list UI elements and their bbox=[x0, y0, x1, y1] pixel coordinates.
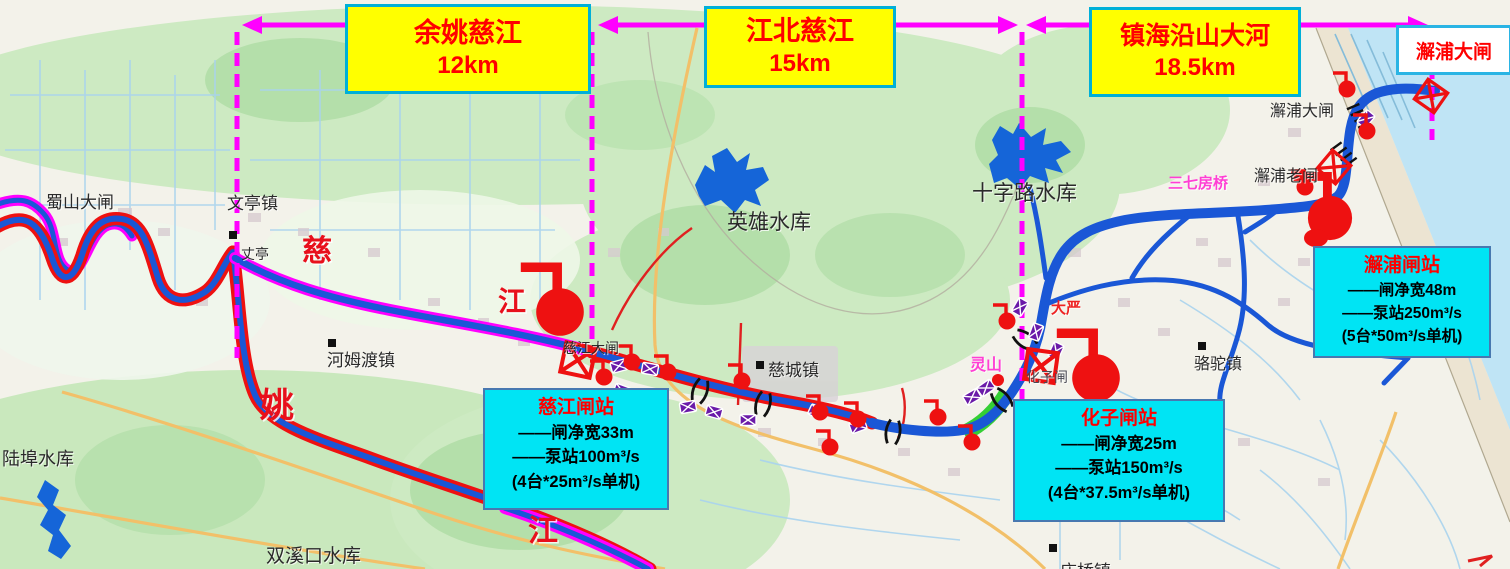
station-line: (4台*37.5m³/s单机) bbox=[1015, 481, 1223, 506]
label-wenting-zhen: 文亭镇 bbox=[227, 189, 278, 214]
label-huazi-zha: 化子闸 bbox=[1026, 367, 1068, 387]
label-ci-river-char1: 慈 bbox=[302, 226, 332, 270]
segment-length: 12km bbox=[348, 51, 588, 81]
station-line: ——闸净宽33m bbox=[485, 421, 667, 446]
label-ci-river-char2: 江 bbox=[498, 280, 526, 320]
map-canvas: 余姚慈江 12km 江北慈江 15km 镇海沿山大河 18.5km 澥浦大闸 慈… bbox=[0, 0, 1510, 569]
lingshan-dot bbox=[992, 374, 1004, 386]
segment-name: 江北慈江 bbox=[707, 15, 893, 49]
segment-length: 18.5km bbox=[1092, 53, 1298, 83]
label-luotuo-zhen: 骆驼镇 bbox=[1194, 350, 1242, 374]
label-shushan-dazha: 蜀山大闸 bbox=[46, 188, 114, 213]
segment-name: 余姚慈江 bbox=[348, 17, 588, 51]
xiepu-dazha-callout: 澥浦大闸 bbox=[1396, 25, 1510, 75]
label-yao-river-char1: 姚 bbox=[260, 378, 294, 427]
label-hemudu-zhen: 河姆渡镇 bbox=[327, 346, 395, 371]
segment-length: 15km bbox=[707, 49, 893, 79]
segment-name: 镇海沿山大河 bbox=[1092, 21, 1298, 52]
label-xiepu-dazha-map: 澥浦大闸 bbox=[1270, 97, 1334, 121]
station-title: 慈江闸站 bbox=[485, 395, 667, 421]
station-line: ——闸净宽25m bbox=[1015, 432, 1223, 457]
segment-box-zhenhai-yanshan: 镇海沿山大河 18.5km bbox=[1089, 7, 1301, 97]
label-yao-river-char2: 江 bbox=[528, 506, 558, 550]
label-shizilu-reservoir: 十字路水库 bbox=[972, 177, 1077, 207]
label-cicheng-zhen: 慈城镇 bbox=[768, 356, 819, 381]
cijiang-station-box: 慈江闸站 ——闸净宽33m ——泵站100m³/s (4台*25m³/s单机) bbox=[483, 388, 669, 510]
station-line: ——泵站100m³/s bbox=[485, 445, 667, 470]
label-zhangting: 丈亭 bbox=[241, 244, 269, 264]
label-dayan: 大严 bbox=[1051, 297, 1081, 318]
label-yingxiong-reservoir: 英雄水库 bbox=[727, 206, 811, 236]
label-lingshan: 灵山 bbox=[970, 351, 1002, 375]
station-line: ——泵站250m³/s bbox=[1315, 302, 1489, 325]
label-lubu-reservoir: 陆埠水库 bbox=[2, 445, 74, 471]
xiepu-station-box: 澥浦闸站 ——闸净宽48m ——泵站250m³/s (5台*50m³/s单机) bbox=[1313, 246, 1491, 358]
station-line: (4台*25m³/s单机) bbox=[485, 470, 667, 495]
station-line: (5台*50m³/s单机) bbox=[1315, 325, 1489, 348]
station-line: ——泵站150m³/s bbox=[1015, 456, 1223, 481]
label-sanqifang-qiao: 三七房桥 bbox=[1168, 172, 1228, 193]
xiepu-dazha-callout-text: 澥浦大闸 bbox=[1416, 37, 1492, 64]
huazi-station-box: 化子闸站 ——闸净宽25m ——泵站150m³/s (4台*37.5m³/s单机… bbox=[1013, 399, 1225, 522]
segment-box-yuyao-cijiang: 余姚慈江 12km bbox=[345, 4, 591, 94]
label-shuangxikou-reservoir: 双溪口水库 bbox=[266, 541, 361, 568]
label-zhuangqiao-zhen: 庄桥镇 bbox=[1060, 557, 1111, 569]
station-title: 澥浦闸站 bbox=[1315, 253, 1489, 279]
segment-box-jiangbei-cijiang: 江北慈江 15km bbox=[704, 6, 896, 88]
label-cijiang-dazha: 慈江大闸 bbox=[563, 338, 619, 358]
label-xiepu-laozha: 澥浦老闸 bbox=[1254, 162, 1318, 186]
station-title: 化子闸站 bbox=[1015, 406, 1223, 432]
station-line: ——闸净宽48m bbox=[1315, 279, 1489, 302]
